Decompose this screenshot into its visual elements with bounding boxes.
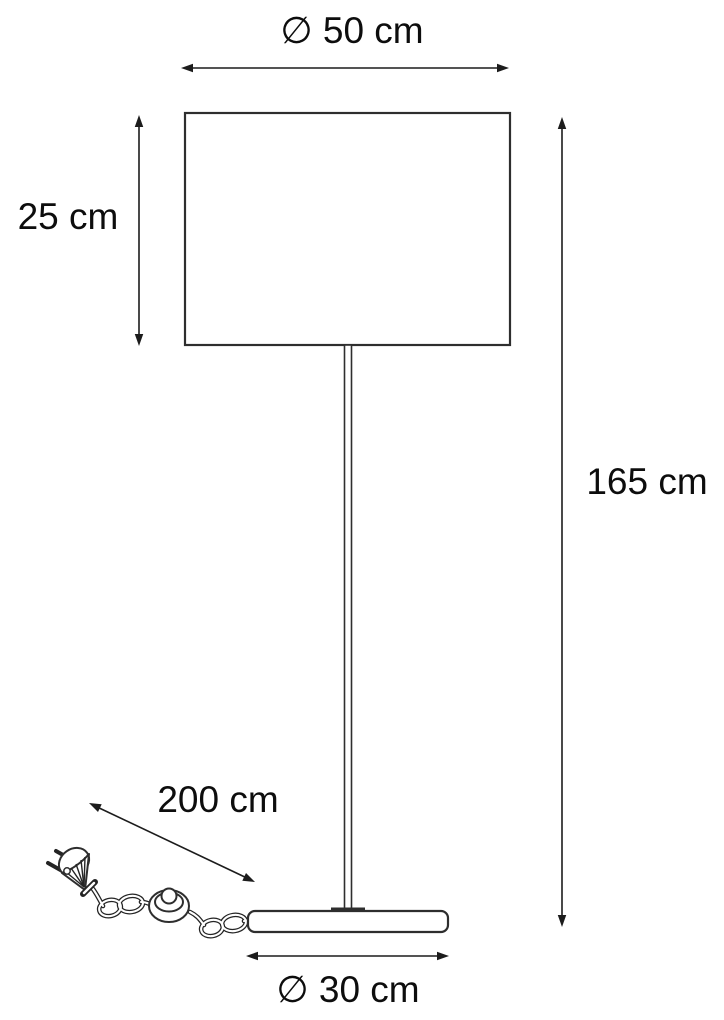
dim-shade-diameter: ∅ 50 cm (181, 10, 509, 72)
power-cord-icon (48, 842, 253, 938)
arrow-left-icon (246, 952, 258, 961)
arrow-left-icon (181, 64, 193, 73)
lamp-base (248, 911, 448, 932)
arrow-down-icon (558, 915, 567, 927)
cord-length-label: 200 cm (157, 779, 278, 820)
arrow-right-icon (437, 952, 449, 961)
shade-height-label: 25 cm (18, 196, 119, 237)
lamp-pole (331, 345, 365, 912)
total-height-label: 165 cm (586, 461, 707, 502)
shade-diameter-label: ∅ 50 cm (280, 10, 423, 51)
base-diameter-label: ∅ 30 cm (276, 969, 419, 1010)
dim-cord-length: 200 cm (89, 779, 279, 882)
arrow-right-icon (497, 64, 509, 73)
dim-base-diameter: ∅ 30 cm (246, 952, 449, 1010)
dim-shade-height: 25 cm (18, 115, 144, 346)
arrow-upleft-icon (89, 803, 102, 812)
lamp-shade (185, 113, 510, 345)
arrow-downright-icon (242, 873, 255, 882)
arrow-down-icon (135, 334, 144, 346)
arrow-up-icon (135, 115, 144, 127)
foot-switch-icon (149, 889, 189, 923)
arrow-up-icon (558, 117, 567, 129)
diagram-drawing: ∅ 50 cm 25 cm 165 cm 200 cm ∅ 30 cm (0, 0, 724, 1020)
dim-total-height: 165 cm (558, 117, 708, 927)
lamp-dimension-diagram: ∅ 50 cm 25 cm 165 cm 200 cm ∅ 30 cm (0, 0, 724, 1020)
power-plug-icon (48, 842, 95, 894)
